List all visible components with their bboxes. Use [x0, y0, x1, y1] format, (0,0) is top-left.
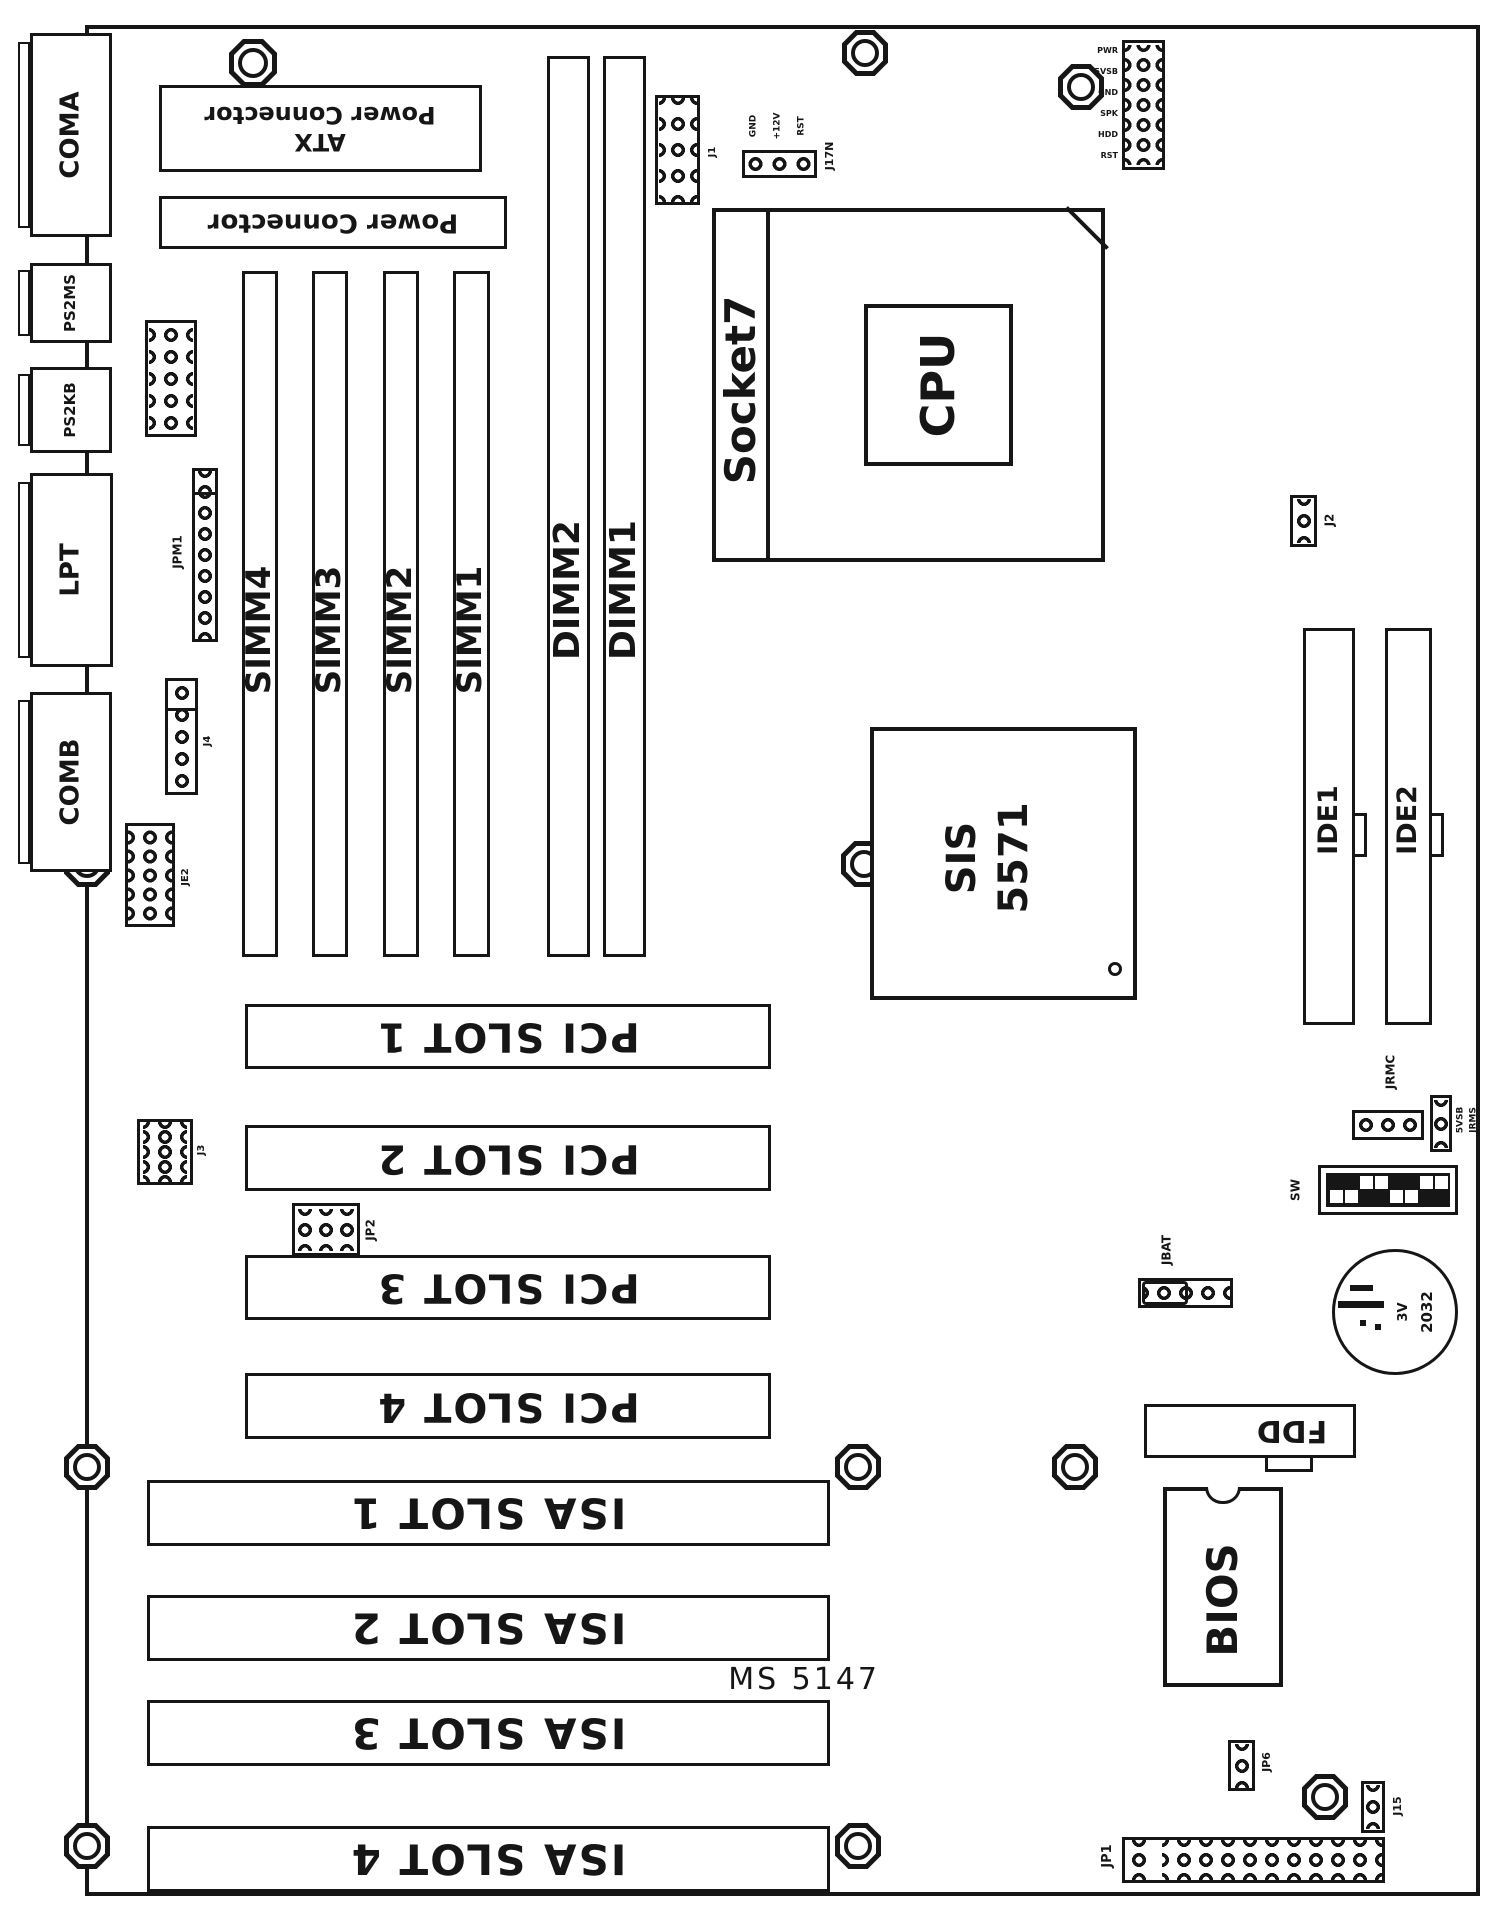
- mounting-hole: [835, 1823, 881, 1869]
- port-com-b-label: COMB: [57, 739, 84, 826]
- pin-grid: [171, 682, 193, 792]
- chipset-model: 5571: [988, 802, 1040, 913]
- battery-symbol-short: [1350, 1285, 1373, 1291]
- mounting-hole: [835, 1444, 881, 1490]
- jp1-header: [1122, 1837, 1385, 1883]
- port-bracket: [18, 42, 30, 228]
- pin-grid: [1125, 45, 1162, 165]
- mounting-hole: [229, 39, 277, 87]
- j2-label: J2: [1324, 514, 1337, 527]
- dimm1-slot: [603, 56, 646, 957]
- ide1-key-tab: [1352, 813, 1367, 857]
- battery-polarity-dot: [1375, 1324, 1381, 1330]
- mounting-hole: [1302, 1774, 1348, 1820]
- j4-header: [165, 678, 198, 795]
- port-bracket: [18, 700, 30, 864]
- panel-pin-label: PWR: [1090, 46, 1118, 55]
- chipset-label: SIS 5571: [936, 802, 1040, 913]
- j1-label: J1: [708, 147, 719, 158]
- at-power-connector-label: Power Connector: [208, 207, 459, 236]
- pin-grid: [1128, 1840, 1150, 1880]
- pin-grid: [1355, 1114, 1421, 1136]
- pci-slot-4-label: PCI SLOT 4: [376, 1384, 639, 1429]
- jp6-header: [1228, 1740, 1255, 1791]
- port-bracket: [18, 482, 30, 658]
- fdd-key-tab: [1265, 1455, 1313, 1472]
- simm2-label: SIMM2: [383, 566, 419, 694]
- port-ps2-keyboard-label: PS2KB: [63, 382, 79, 437]
- j4-label: J4: [203, 736, 214, 747]
- chipset-vendor: SIS: [936, 802, 988, 913]
- motherboard-layout-diagram: COMA PS2MS PS2KB LPT COMB ATX Power Conn…: [0, 0, 1504, 1928]
- jbat-label: JBAT: [1161, 1235, 1174, 1265]
- dimm2-label: DIMM2: [549, 520, 587, 660]
- isa-slot-3-label: ISA SLOT 3: [350, 1709, 627, 1756]
- simm1-label: SIMM1: [453, 566, 489, 694]
- chipset-pin1-dot: [1108, 962, 1122, 976]
- ide2-label: IDE2: [1394, 785, 1422, 855]
- pin-grid: [1294, 499, 1314, 543]
- jrmc-header: [1352, 1110, 1424, 1140]
- battery-type-label: 2032: [1420, 1291, 1436, 1333]
- j17n-header: [742, 150, 817, 178]
- pin-grid: [1364, 1785, 1382, 1829]
- atx-power-title: ATX: [204, 128, 435, 155]
- jrms-label: JRMS: [1469, 1107, 1478, 1133]
- port-bracket: [18, 374, 30, 446]
- atx-power-subtitle: Power Connector: [204, 101, 435, 128]
- je2-header: [125, 823, 175, 927]
- bios-label: BIOS: [1201, 1543, 1245, 1657]
- jrms-5vsb-label: 5VSB: [1456, 1107, 1465, 1134]
- j4-divider: [165, 708, 198, 711]
- j3-header: [137, 1119, 193, 1185]
- jpm1-label: JPM1: [172, 535, 185, 569]
- dip-switch-positions: [1330, 1190, 1343, 1203]
- socket7-label: Socket7: [719, 296, 763, 485]
- header-2x5: [145, 320, 197, 437]
- j15-label: J15: [1392, 1796, 1404, 1815]
- ide2-key-tab: [1429, 813, 1444, 857]
- dip-switch-label: SW: [1290, 1179, 1303, 1201]
- simm4-label: SIMM4: [242, 566, 278, 694]
- jp6-label: JP6: [1261, 1752, 1273, 1772]
- panel-pin-label: RST: [1090, 151, 1118, 160]
- pci-slot-3-label: PCI SLOT 3: [376, 1265, 639, 1310]
- pin-grid: [149, 324, 193, 434]
- jbat-jumper-cap: [1142, 1281, 1188, 1305]
- pin-grid: [1232, 1744, 1252, 1788]
- fan-pin-label-12v: +12V: [773, 112, 782, 139]
- battery-symbol-long: [1338, 1301, 1384, 1308]
- mounting-hole: [64, 1444, 110, 1490]
- fdd-label: FDD: [1257, 1413, 1327, 1447]
- fan-pin-label-gnd: GND: [749, 115, 758, 137]
- pin-grid: [128, 828, 172, 923]
- port-bracket: [18, 270, 30, 336]
- battery-voltage-label: 3V: [1397, 1302, 1411, 1321]
- dip-switch-body: [1326, 1173, 1450, 1207]
- dimm1-label: DIMM1: [605, 520, 643, 660]
- port-ps2-mouse-label: PS2MS: [63, 274, 79, 332]
- jp1-label: JP1: [1101, 1844, 1115, 1867]
- pin-grid: [195, 471, 215, 639]
- j3-label: J3: [197, 1145, 208, 1156]
- panel-header-2x6: [1122, 40, 1165, 170]
- isa-slot-4-label: ISA SLOT 4: [350, 1835, 627, 1882]
- panel-pin-label: SPK: [1090, 109, 1118, 118]
- j2-header: [1290, 495, 1317, 547]
- fan-pin-label-rst: RST: [797, 116, 806, 136]
- battery: [1332, 1249, 1458, 1375]
- mounting-hole: [842, 30, 888, 76]
- mounting-hole: [1052, 1444, 1098, 1490]
- board-model-label: MS 5147: [700, 1662, 880, 1697]
- jp2-header: [292, 1203, 360, 1256]
- pin-grid: [295, 1209, 357, 1251]
- je2-label: JE2: [181, 868, 192, 886]
- port-lpt-label: LPT: [57, 543, 84, 596]
- dimm2-slot: [547, 56, 590, 957]
- jpm1-divider: [192, 492, 218, 495]
- j17n-label: J17N: [824, 142, 836, 171]
- jrms-header: [1430, 1095, 1452, 1152]
- isa-slot-1-label: ISA SLOT 1: [350, 1489, 627, 1536]
- pci-slot-1-label: PCI SLOT 1: [376, 1014, 639, 1059]
- pin-grid: [1433, 1100, 1449, 1148]
- jp1-gap: [1150, 1840, 1162, 1880]
- pin-grid: [659, 98, 697, 202]
- battery-polarity-dot: [1360, 1320, 1366, 1326]
- pin-grid: [745, 153, 814, 175]
- mounting-hole: [64, 1823, 110, 1869]
- ide1-label: IDE1: [1315, 785, 1343, 855]
- panel-pin-label: GND: [1090, 88, 1118, 97]
- panel-pin-label: 5VSB: [1090, 67, 1118, 76]
- pin-grid: [143, 1122, 187, 1182]
- jp2-label: JP2: [365, 1219, 378, 1241]
- panel-pin-label: HDD: [1090, 130, 1118, 139]
- pci-slot-2-label: PCI SLOT 2: [376, 1136, 639, 1181]
- isa-slot-2-label: ISA SLOT 2: [350, 1604, 627, 1651]
- cpu-label: CPU: [914, 333, 962, 438]
- pin-grid: [1162, 1840, 1382, 1880]
- port-com-a-label: COMA: [57, 91, 84, 178]
- j15-header: [1361, 1781, 1385, 1833]
- j1-header: [655, 95, 700, 205]
- simm3-label: SIMM3: [312, 566, 348, 694]
- atx-power-connector-label: ATX Power Connector: [204, 101, 435, 155]
- socket7-divider: [766, 212, 770, 558]
- jrmc-label: JRMC: [1385, 1055, 1398, 1089]
